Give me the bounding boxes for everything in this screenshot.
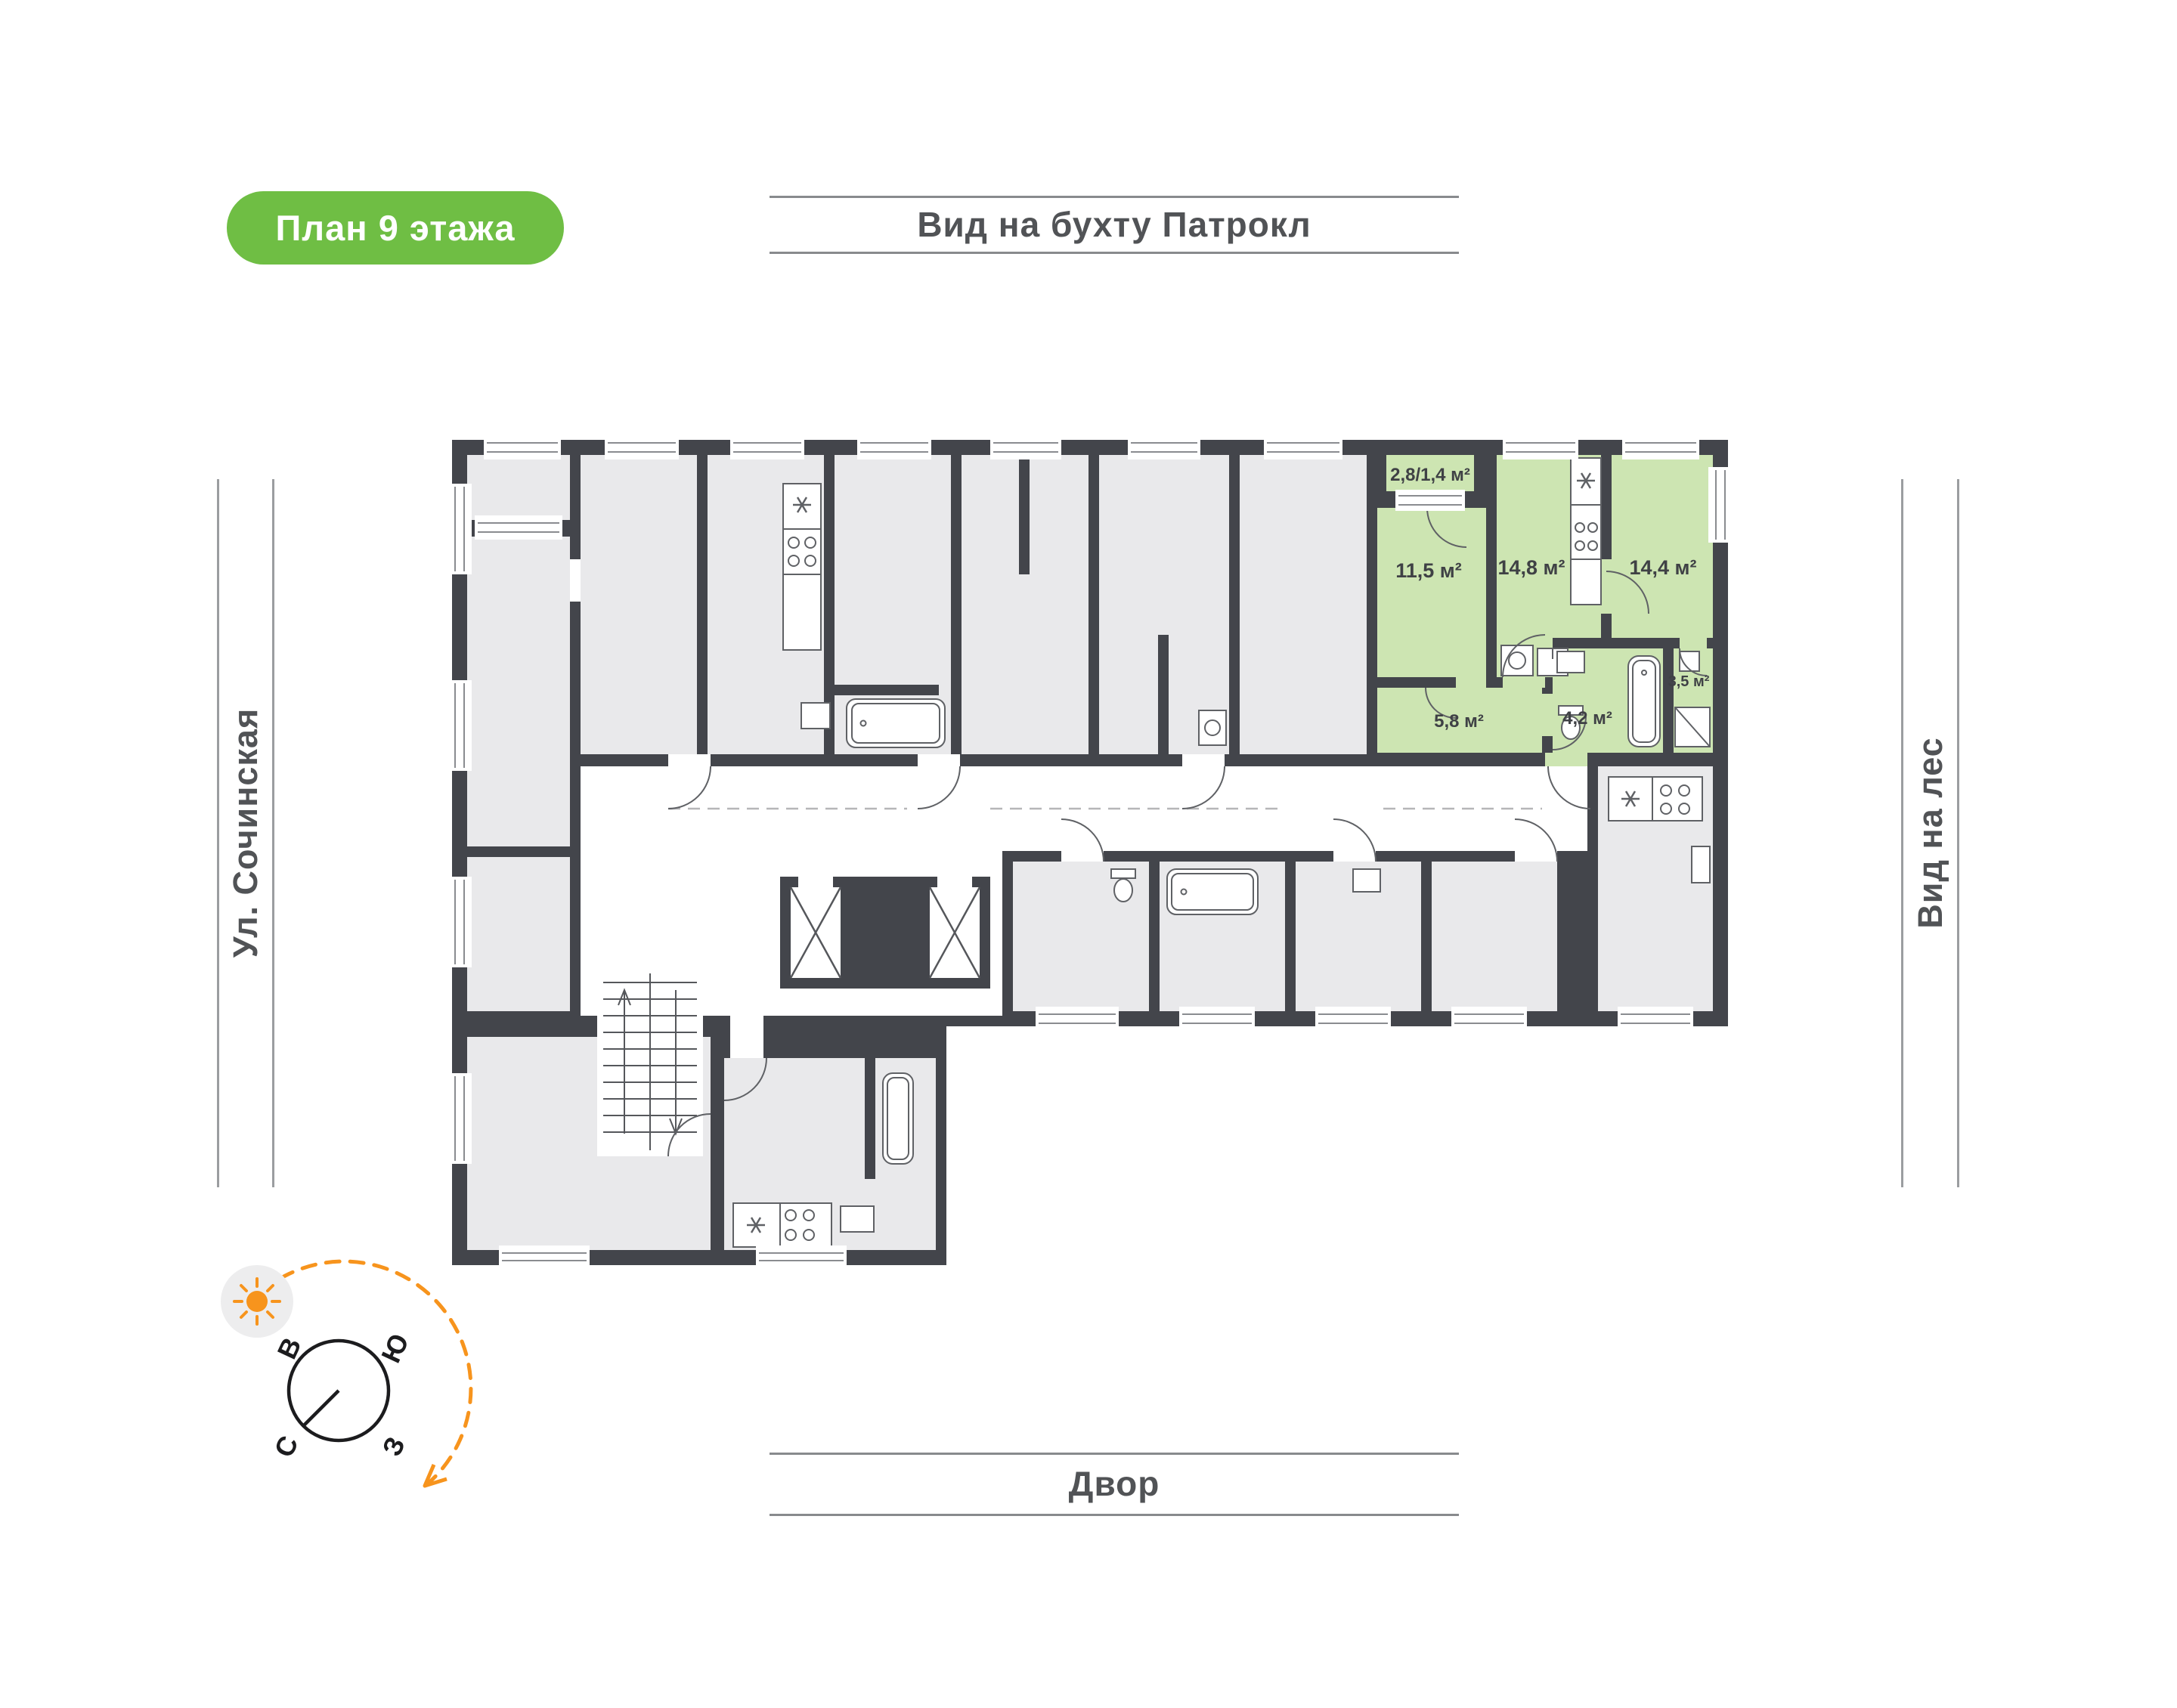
unit-wall <box>1377 677 1456 688</box>
unit-wall <box>1553 638 1601 648</box>
compass-letter-north: С <box>268 1431 304 1462</box>
compass: В Ю С З <box>221 1261 471 1486</box>
room <box>1240 455 1367 754</box>
compass-letter-west: З <box>376 1432 411 1461</box>
room <box>1432 862 1557 1011</box>
unit-door-opening <box>1503 677 1545 688</box>
elevator-door <box>798 877 833 887</box>
building: 2,8/1,4 м² 11,5 м² 14,8 м² 14,4 м² 5,8 м… <box>447 435 1733 1270</box>
area-label-balcony: 2,8/1,4 м² <box>1390 465 1470 485</box>
room <box>467 455 570 520</box>
sun-icon <box>234 1279 280 1324</box>
room <box>467 857 570 1011</box>
area-label-bathroom: 4,2 м² <box>1562 708 1612 729</box>
unit-door-opening <box>1680 638 1707 648</box>
unit-room-bedroom[interactable] <box>1612 455 1713 638</box>
area-label-living-room: 11,5 м² <box>1395 559 1462 582</box>
floor-plan-page: План 9 этажа Вид на бухту Патрокл Двор У… <box>0 0 2177 1708</box>
unit-entry-opening <box>1545 753 1587 766</box>
area-label-kitchen: 14,8 м² <box>1497 556 1565 579</box>
area-label-bedroom: 14,4 м² <box>1629 556 1696 579</box>
area-label-shower: 3,5 м² <box>1668 673 1710 690</box>
unit-door-opening <box>1542 694 1553 736</box>
room <box>581 455 697 754</box>
elevator-door <box>937 877 972 887</box>
floor-plan-svg: 2,8/1,4 м² 11,5 м² 14,8 м² 14,4 м² 5,8 м… <box>0 0 2177 1708</box>
area-label-hallway: 5,8 м² <box>1434 711 1484 732</box>
unit-door-opening <box>1601 559 1612 614</box>
room <box>467 537 570 846</box>
